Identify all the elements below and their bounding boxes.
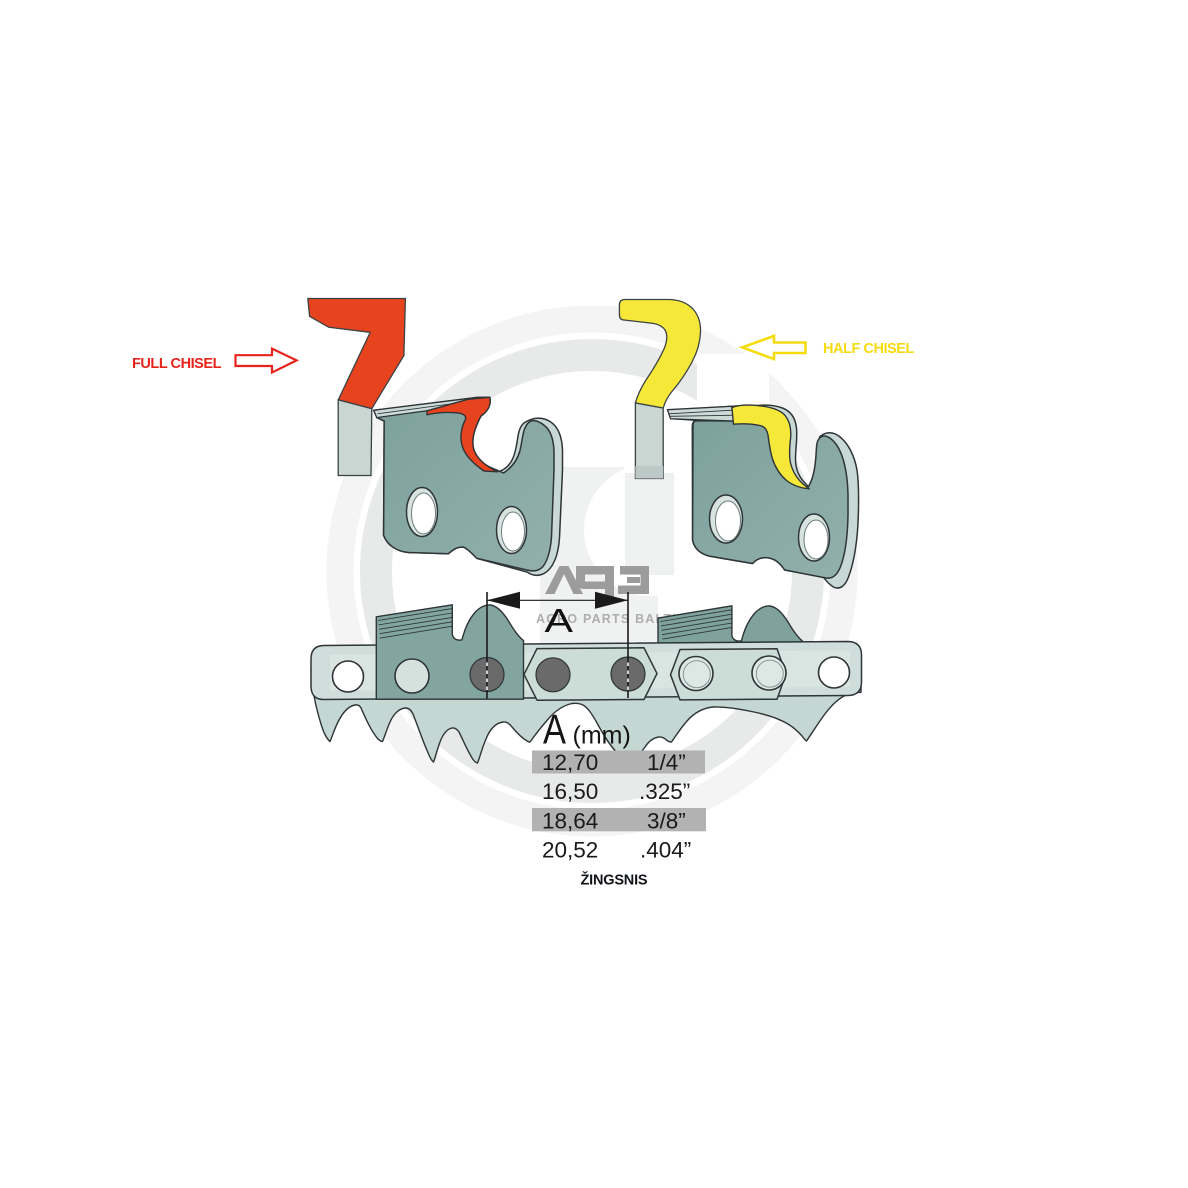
svg-text:20,52: 20,52	[542, 838, 598, 863]
svg-text:1/4”: 1/4”	[647, 750, 686, 775]
svg-text:A: A	[545, 602, 574, 639]
svg-text:12,70: 12,70	[542, 750, 598, 775]
svg-text:HALF CHISEL: HALF CHISEL	[823, 341, 915, 357]
svg-text:18,64: 18,64	[542, 809, 598, 834]
svg-text:A: A	[543, 706, 566, 753]
svg-text:(mm): (mm)	[573, 722, 631, 750]
svg-text:.325”: .325”	[639, 779, 690, 804]
svg-text:FULL CHISEL: FULL CHISEL	[132, 356, 222, 372]
svg-text:.404”: .404”	[640, 838, 691, 863]
svg-text:3/8”: 3/8”	[647, 809, 686, 834]
svg-text:ŽINGSNIS: ŽINGSNIS	[581, 871, 648, 889]
svg-text:16,50: 16,50	[542, 779, 598, 804]
